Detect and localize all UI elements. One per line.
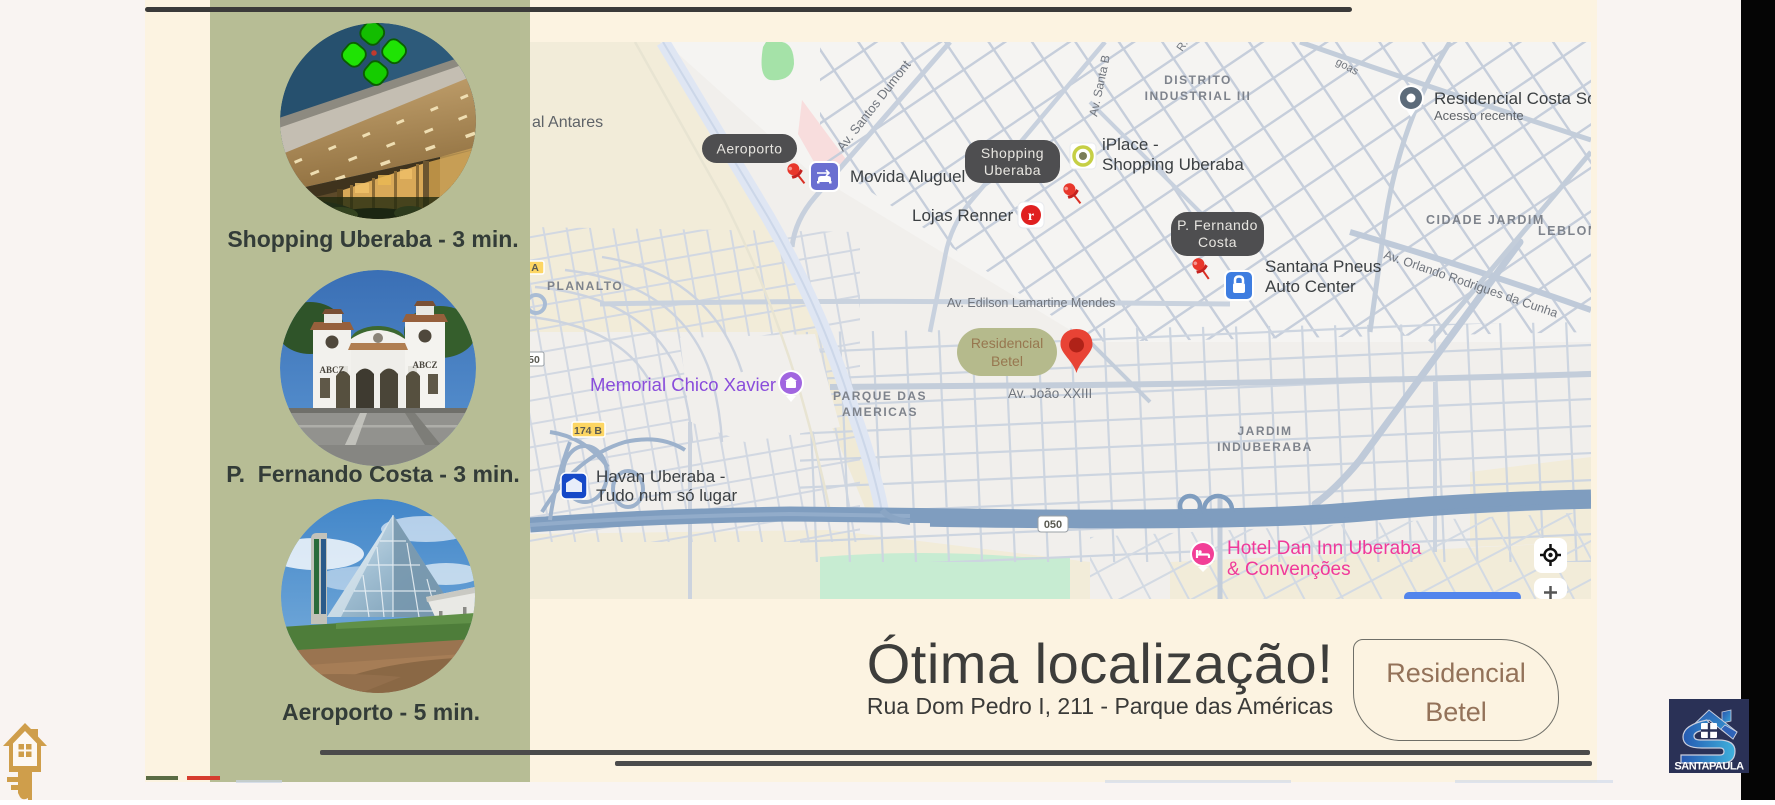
svg-text:Lojas Renner: Lojas Renner	[912, 206, 1013, 225]
svg-text:PLANALTO: PLANALTO	[547, 279, 623, 293]
svg-text:al Antares: al Antares	[532, 114, 603, 131]
svg-text:A: A	[531, 262, 539, 274]
svg-text:ABCZ: ABCZ	[319, 365, 344, 375]
svg-text:Movida Aluguel: Movida Aluguel	[850, 167, 965, 186]
svg-text:Memorial Chico Xavier: Memorial Chico Xavier	[590, 374, 776, 395]
svg-text:r: r	[1028, 209, 1034, 224]
svg-text:Av. João XXIII: Av. João XXIII	[1008, 386, 1092, 401]
svg-text:Costa: Costa	[1198, 234, 1237, 250]
svg-text:Residencial: Residencial	[971, 335, 1043, 351]
svg-text:CIDADE JARDIM: CIDADE JARDIM	[1426, 213, 1545, 227]
svg-text:50: 50	[530, 354, 540, 366]
svg-text:ABCZ: ABCZ	[412, 360, 437, 370]
svg-text:Acesso recente: Acesso recente	[1434, 108, 1524, 123]
svg-text:050: 050	[1044, 519, 1062, 531]
svg-text:Shopping Uberaba: Shopping Uberaba	[1102, 155, 1244, 174]
svg-text:INDUBERABA: INDUBERABA	[1217, 440, 1313, 454]
svg-text:PARQUE DAS: PARQUE DAS	[833, 389, 927, 403]
svg-text:JARDIM: JARDIM	[1237, 424, 1292, 438]
svg-text:INDUSTRIAL III: INDUSTRIAL III	[1145, 89, 1252, 103]
svg-text:SANTAPAULA: SANTAPAULA	[1674, 761, 1744, 773]
svg-text:& Convenções: & Convenções	[1227, 559, 1351, 580]
svg-text:Auto Center: Auto Center	[1265, 277, 1356, 296]
svg-text:LEBLON: LEBLON	[1538, 224, 1591, 238]
svg-text:Havan Uberaba -: Havan Uberaba -	[596, 467, 725, 486]
svg-text:Santana Pneus: Santana Pneus	[1265, 257, 1381, 276]
svg-text:Aeroporto: Aeroporto	[717, 141, 783, 157]
svg-text:Shopping: Shopping	[981, 145, 1044, 161]
svg-text:Av. Edilson Lamartine Mendes: Av. Edilson Lamartine Mendes	[947, 296, 1115, 310]
svg-text:Residencial Costa Sc: Residencial Costa Sc	[1434, 89, 1591, 108]
svg-text:DISTRITO: DISTRITO	[1164, 73, 1232, 87]
svg-text:P. Fernando: P. Fernando	[1177, 217, 1258, 233]
svg-text:Betel: Betel	[991, 353, 1023, 369]
svg-text:174 B: 174 B	[574, 425, 602, 437]
svg-text:Tudo num só lugar: Tudo num só lugar	[596, 486, 737, 505]
svg-text:AMERICAS: AMERICAS	[842, 405, 918, 419]
svg-text:iPlace -: iPlace -	[1102, 135, 1159, 154]
svg-text:Hotel Dan Inn Uberaba: Hotel Dan Inn Uberaba	[1227, 538, 1422, 559]
svg-text:Uberaba: Uberaba	[984, 162, 1041, 178]
